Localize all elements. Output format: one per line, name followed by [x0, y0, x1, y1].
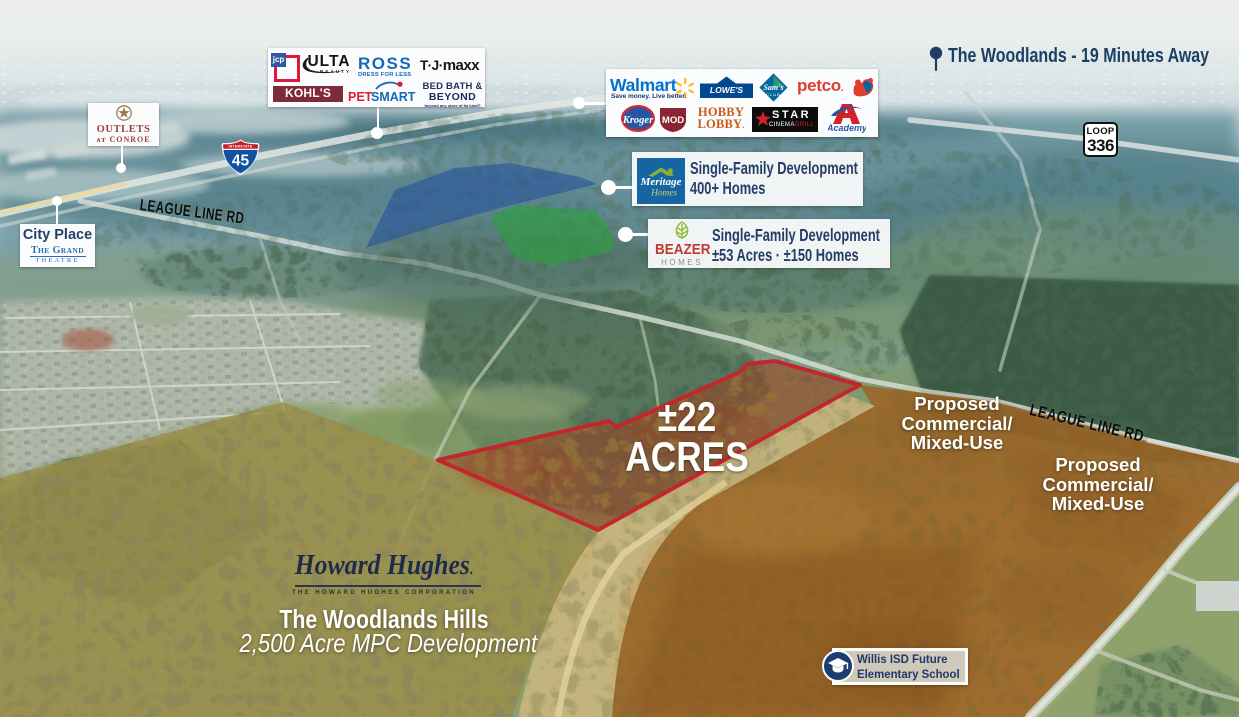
- svg-text:CLUB: CLUB: [766, 92, 781, 97]
- svg-text:Meritage: Meritage: [640, 176, 682, 188]
- svg-text:Kroger: Kroger: [622, 115, 654, 126]
- svg-text:Academy: Academy: [828, 123, 866, 133]
- svg-text:Homes: Homes: [650, 189, 677, 199]
- svg-text:LOWE'S: LOWE'S: [710, 85, 744, 95]
- svg-text:INTERSTATE: INTERSTATE: [229, 145, 253, 149]
- svg-text:45: 45: [232, 153, 250, 170]
- svg-text:Sam's: Sam's: [763, 83, 783, 92]
- svg-text:SMART: SMART: [371, 90, 416, 104]
- svg-text:MOD: MOD: [662, 115, 684, 126]
- svg-text:PET: PET: [348, 90, 373, 104]
